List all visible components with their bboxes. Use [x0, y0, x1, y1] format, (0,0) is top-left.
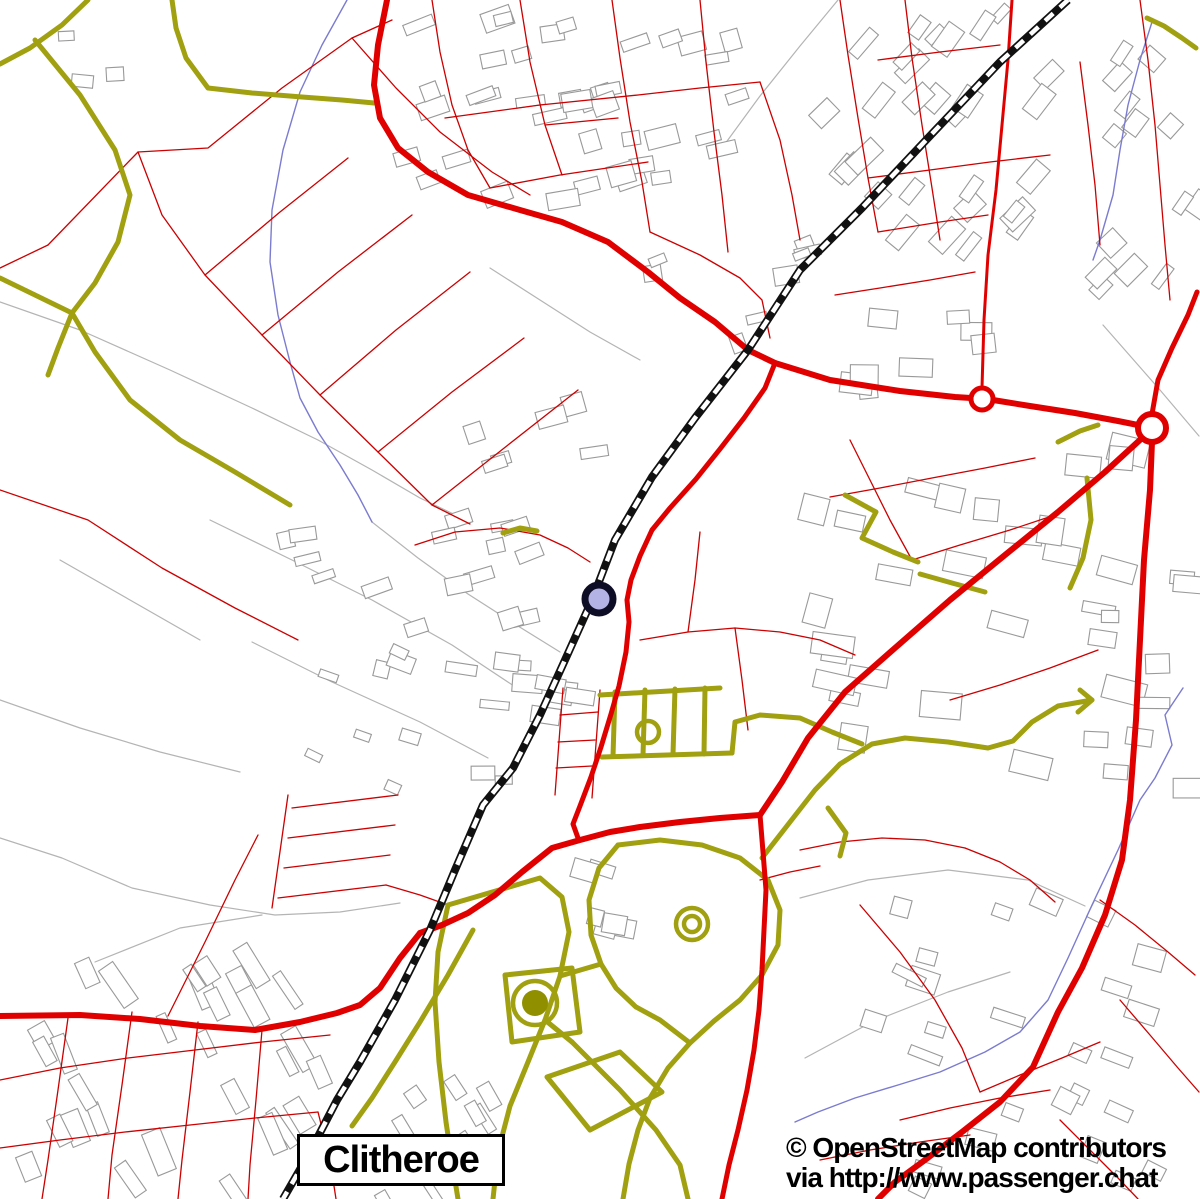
roundabout: [1138, 414, 1166, 442]
place-label-text: Clitheroe: [323, 1139, 479, 1182]
map-canvas[interactable]: [0, 0, 1200, 1199]
attribution-line1: © OpenStreetMap contributors: [786, 1133, 1196, 1163]
place-label-box: Clitheroe: [297, 1134, 505, 1186]
map-attribution: © OpenStreetMap contributors via http://…: [786, 1133, 1196, 1193]
location-marker[interactable]: [585, 585, 613, 613]
attribution-line2: via http://www.passenger.chat: [786, 1163, 1196, 1193]
roundabout: [971, 388, 993, 410]
map-viewport[interactable]: Clitheroe © OpenStreetMap contributors v…: [0, 0, 1200, 1199]
castle-keep-blob: [522, 990, 548, 1016]
